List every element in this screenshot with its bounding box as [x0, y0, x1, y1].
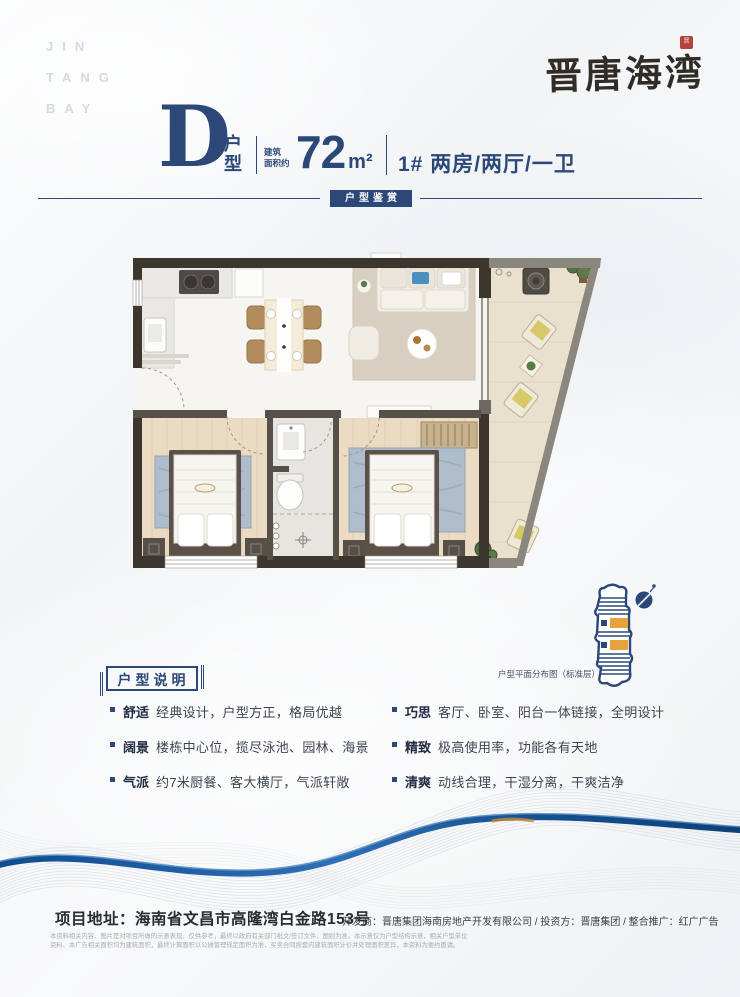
bedroom-1: [143, 450, 267, 560]
area-prefix: 建筑 面积约: [264, 147, 290, 169]
banner-rule-left: [38, 198, 320, 199]
compass-icon: [628, 576, 662, 618]
area-figure: 72 m²: [296, 130, 373, 174]
brand-watermark: JIN TANG BAY: [46, 40, 118, 133]
description-item: 阔景 楼栋中心位，揽尽泳池、园林、海景: [110, 737, 390, 756]
description-header: 户型说明: [106, 666, 198, 691]
unit-type-label: 户型: [224, 134, 244, 174]
window: [165, 556, 257, 568]
title-divider: [256, 136, 257, 174]
developer-credits: 开发商：晋唐集团海南房地产开发有限公司 / 投资方：晋唐集团 / 整合推广：红广…: [342, 913, 719, 928]
highlighted-unit: [610, 640, 628, 650]
brand-logo-text: 晋唐海湾: [544, 42, 705, 100]
description-item: 舒适 经典设计，户型方正，格局优越: [110, 702, 390, 721]
banner-rule-right: [420, 198, 702, 199]
bullet-square: [110, 707, 115, 712]
area-unit: m²: [348, 151, 372, 174]
description-item: 巧思 客厅、卧室、阳台一体链接，全明设计: [392, 702, 692, 721]
toilet: [277, 480, 303, 510]
unit-letter: D: [158, 100, 231, 174]
blue-pillow: [412, 272, 429, 284]
unit-spec: 1# 两房/两厅/一卫: [398, 148, 576, 178]
window: [133, 280, 142, 306]
watermark-line: TANG: [46, 71, 118, 84]
bullet-square: [110, 742, 115, 747]
brand-seal-stamp: 晋: [680, 36, 693, 49]
bullet-square: [392, 707, 397, 712]
terrace-floor: [487, 264, 607, 564]
watermark-line: BAY: [46, 102, 118, 115]
poster-page: JIN TANG BAY 晋唐海湾 晋 D 户型 建筑 面积约 72 m² 1#…: [0, 0, 740, 997]
description-item: 精致 极高使用率，功能各有天地: [392, 737, 692, 756]
bullet-square: [392, 742, 397, 747]
brand-logo: 晋唐海湾 晋: [545, 26, 725, 98]
area-value: 72: [296, 130, 345, 174]
highlighted-unit: [610, 618, 628, 628]
wave-decoration: [0, 775, 740, 915]
window: [365, 556, 457, 568]
distribution-caption: 户型平面分布图（标准层）: [498, 668, 600, 680]
watermark-line: JIN: [46, 40, 118, 53]
floor-plan: [127, 252, 619, 582]
project-address: 项目地址：海南省文昌市高隆湾白金路153号: [55, 907, 370, 929]
banner-appreciation: 户型鉴赏: [330, 190, 412, 207]
legal-disclaimer: 本资料相关内容、图片是对项目所做的示意表现，仅供参考，最终以政府有关部门批文/签…: [50, 933, 698, 950]
title-divider: [386, 135, 387, 175]
